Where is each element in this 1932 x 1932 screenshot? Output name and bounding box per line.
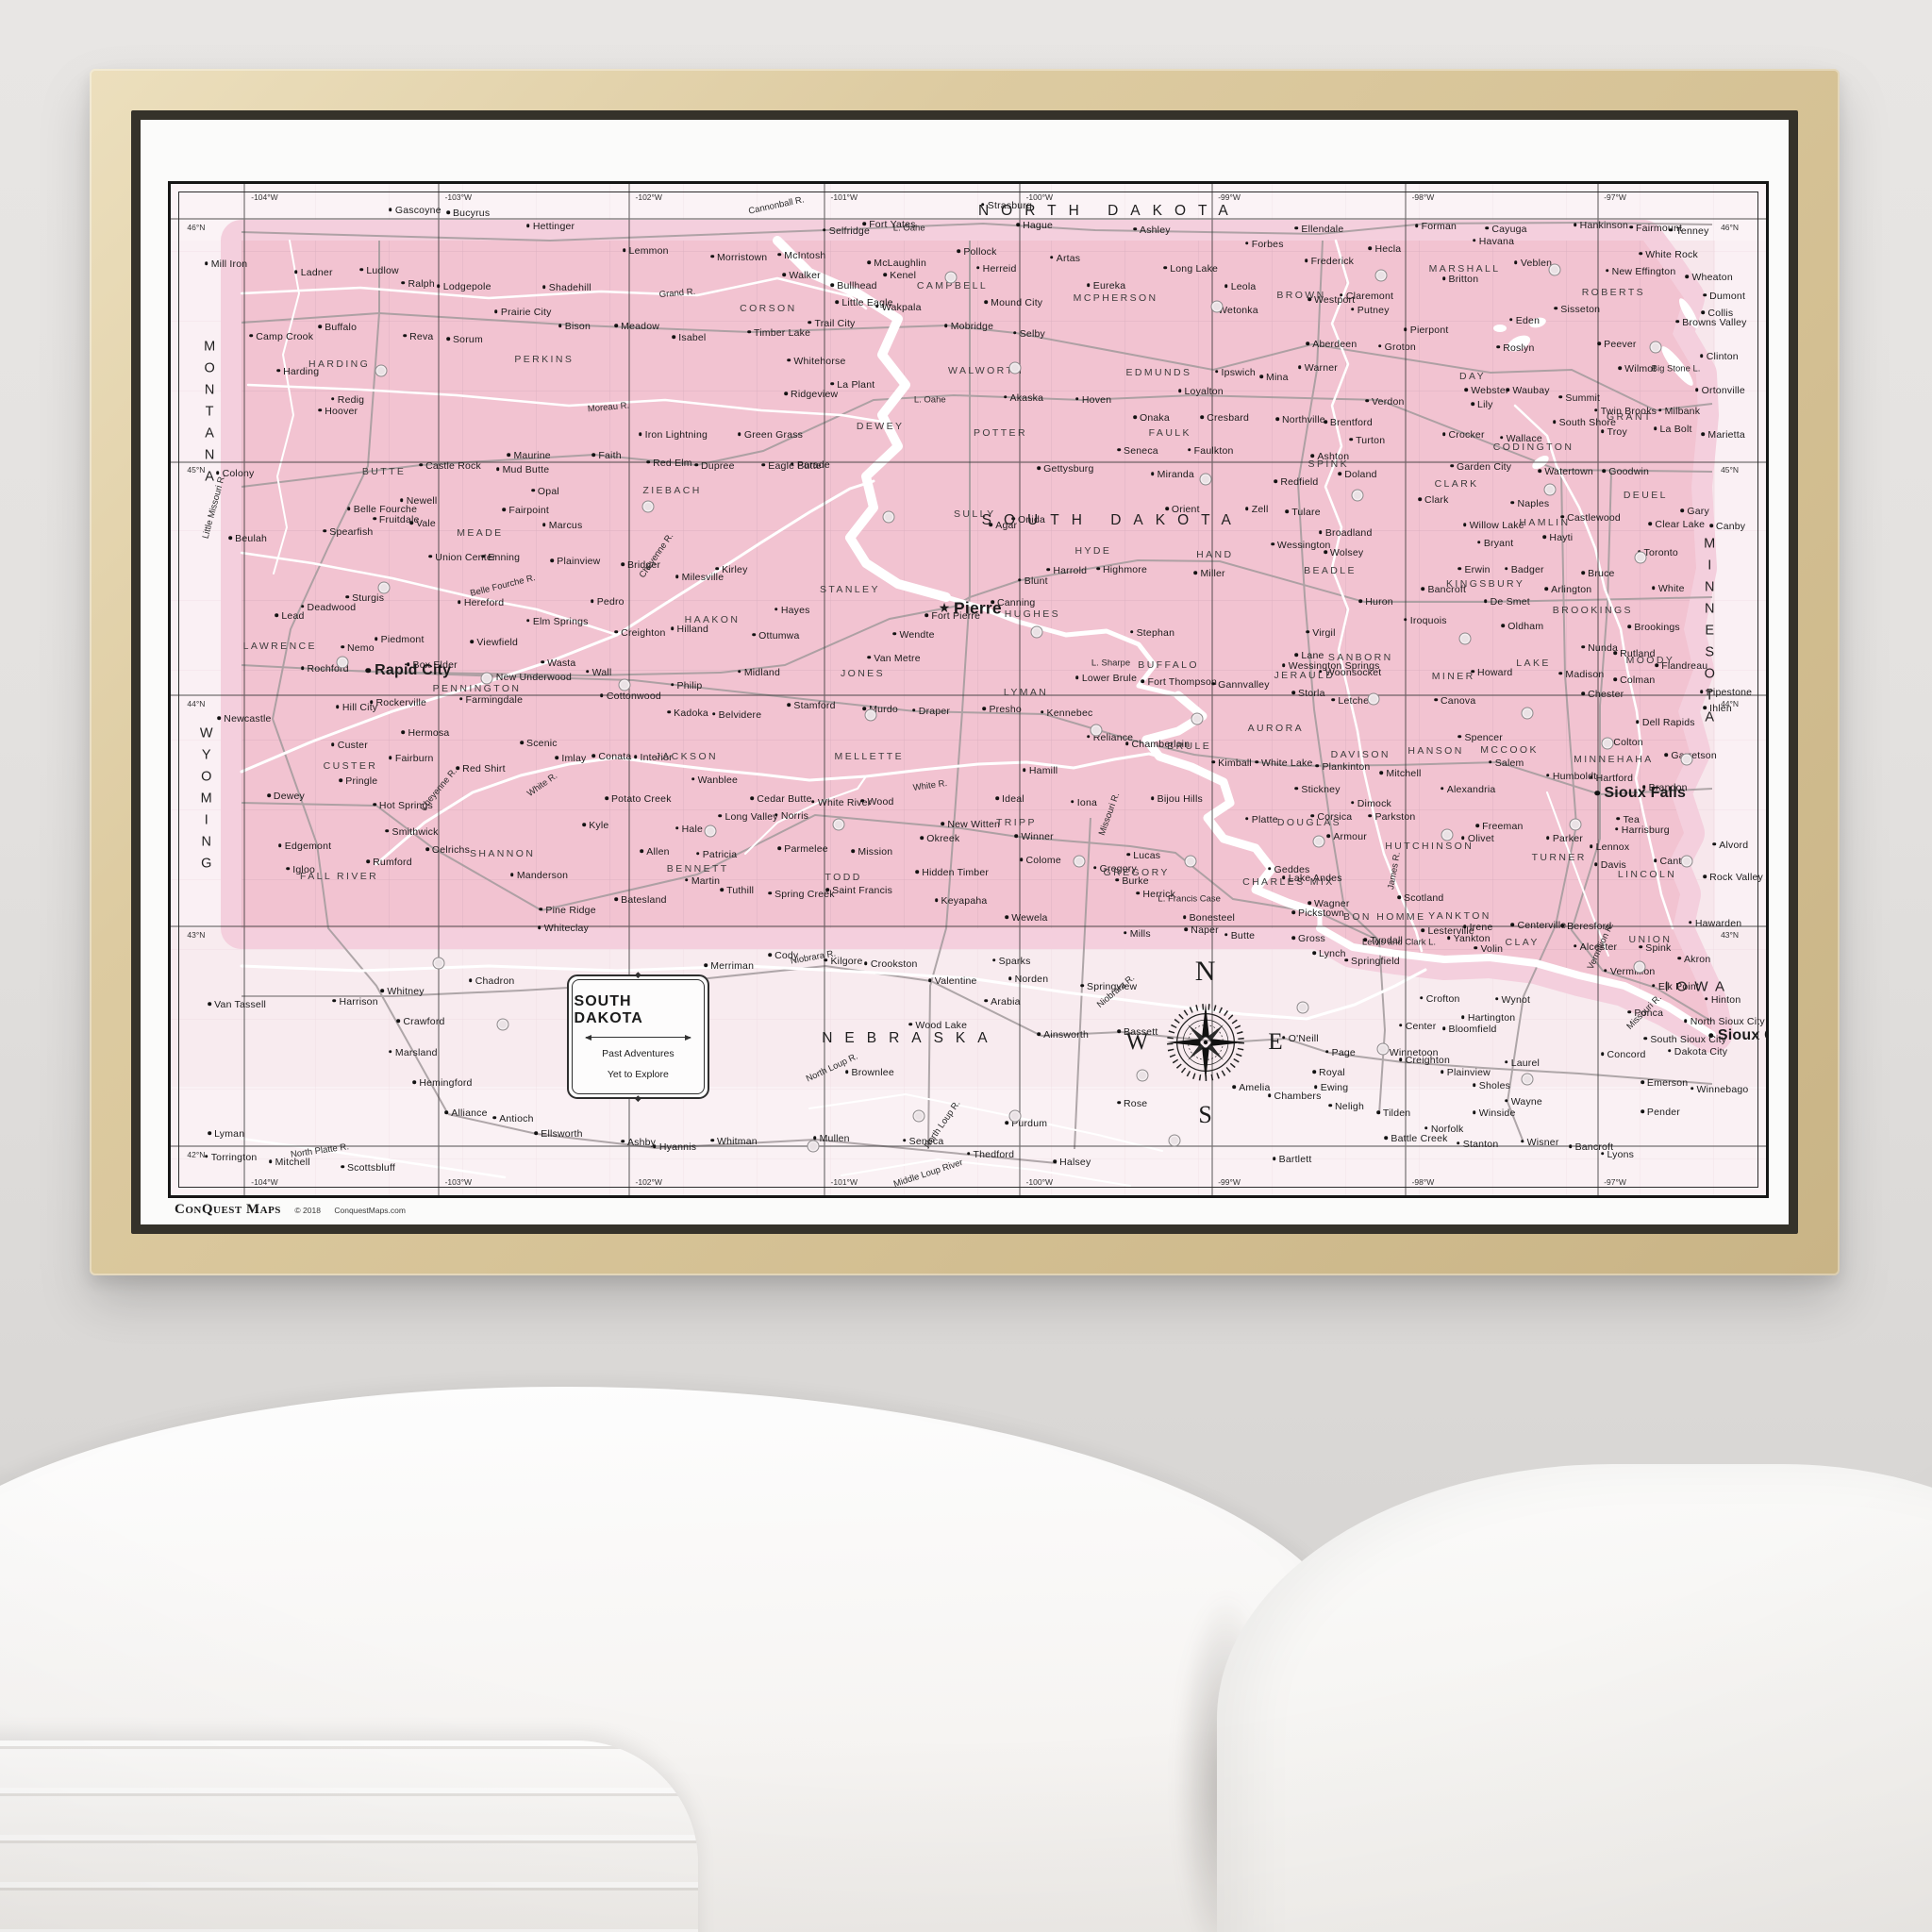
city-dot-icon [1037, 1033, 1041, 1037]
city-dot-icon [1594, 408, 1598, 412]
city-label: Ladner [296, 263, 333, 280]
city-label: Colome [1022, 851, 1061, 868]
city-dot-icon [1473, 239, 1476, 242]
road-shield-icon [496, 1018, 508, 1030]
road-shield-icon [1601, 738, 1613, 750]
city-dot-icon [1295, 654, 1299, 658]
city-dot-icon [1005, 1121, 1008, 1124]
city-label: Bucyrus [448, 204, 490, 221]
city-dot-icon [1496, 345, 1500, 349]
city-dot-icon [768, 954, 772, 958]
compass-rose: N S W E [1130, 967, 1281, 1118]
city-dot-icon [675, 575, 679, 579]
city-label: Hoover [320, 402, 358, 419]
city-dot-icon [267, 793, 271, 797]
city-dot-icon [1684, 1020, 1688, 1024]
city-dot-icon [605, 797, 608, 801]
county-label: MOODY [1626, 655, 1675, 666]
city-label: Stanton [1458, 1135, 1499, 1152]
city-label: White Rock [1641, 245, 1698, 262]
city-label: Faulkton [1190, 441, 1234, 458]
city-label: La Plant [832, 375, 874, 392]
city-label: Enning [483, 548, 520, 565]
city-label: Hettinger [528, 217, 575, 234]
city-label: Allen [641, 842, 669, 859]
city-label: Lily [1473, 395, 1493, 412]
city-dot-icon [389, 756, 392, 759]
city-dot-icon [389, 1050, 392, 1054]
city-dot-icon [1581, 571, 1585, 575]
water-label: James R. [1386, 851, 1403, 890]
city-dot-icon [788, 358, 791, 362]
state-label: NORTH DAKOTA [978, 203, 1241, 220]
city-label: Creighton [616, 624, 665, 641]
city-label: Cottonwood [602, 687, 661, 704]
city-dot-icon [492, 1116, 496, 1120]
compass-south-label: S [1198, 1101, 1211, 1129]
city-dot-icon [1713, 842, 1717, 846]
city-label: Veblen [1516, 254, 1552, 271]
city-label: Brentford [1325, 413, 1373, 430]
city-label: Lennox [1591, 838, 1630, 855]
state-label: MINNESOTA [1702, 536, 1717, 731]
water-label: L. Oahe [893, 223, 925, 233]
city-dot-icon [1604, 969, 1607, 973]
city-dot-icon [1325, 1050, 1329, 1054]
longitude-label: -99°W [1218, 1177, 1241, 1187]
city-label: Naples [1512, 494, 1549, 511]
city-dot-icon [920, 837, 924, 841]
city-dot-icon [1463, 524, 1467, 527]
city-label: Highmore [1098, 560, 1147, 577]
city-label: Whitehorse [789, 352, 845, 369]
county-label: HARDING [308, 358, 370, 370]
city-dot-icon [694, 463, 698, 467]
city-dot-icon [715, 567, 719, 571]
city-label: Smithwick [387, 823, 438, 840]
city-label: Bullhead [832, 276, 876, 293]
city-dot-icon [324, 529, 327, 533]
city-label: Wall [588, 663, 612, 680]
road-shield-icon [1073, 856, 1085, 868]
county-label: JACKSON [656, 751, 718, 762]
city-dot-icon [1338, 473, 1341, 476]
city-label: Lyman [209, 1124, 244, 1141]
city-dot-icon [1349, 438, 1353, 441]
city-label: Dewey [269, 787, 305, 804]
latitude-label: 43°N [1721, 930, 1739, 940]
city-label: Fort Thompson [1142, 673, 1217, 690]
city-label: Kirley [717, 560, 747, 577]
city-dot-icon [1654, 426, 1657, 430]
city-dot-icon [458, 600, 461, 604]
longitude-label: -98°W [1412, 1177, 1435, 1187]
city-dot-icon [1332, 698, 1336, 702]
city-dot-icon [1165, 507, 1169, 510]
city-dot-icon [639, 433, 642, 437]
city-label: White [1654, 579, 1685, 596]
city-label: Potato Creek [607, 790, 672, 807]
city-dot-icon [1328, 1104, 1332, 1108]
city-dot-icon [984, 300, 988, 304]
city-label: Onaka [1135, 408, 1170, 425]
city-dot-icon [774, 608, 778, 611]
city-dot-icon [867, 656, 871, 659]
city-dot-icon [556, 756, 559, 759]
city-dot-icon [875, 305, 879, 308]
city-dot-icon [1457, 1141, 1460, 1145]
city-dot-icon [1295, 226, 1299, 230]
city-dot-icon [1008, 976, 1012, 980]
city-label: Scottsbluff [342, 1158, 395, 1175]
city-dot-icon [228, 537, 232, 541]
city-label: Lane [1296, 646, 1324, 663]
city-dot-icon [1546, 837, 1550, 841]
county-label: HUGHES [1005, 608, 1060, 620]
city-dot-icon [1188, 448, 1191, 452]
city-dot-icon [1705, 997, 1708, 1001]
city-label: Crawford [398, 1012, 444, 1029]
city-dot-icon [1464, 388, 1468, 391]
city-label: White Lake [1257, 754, 1313, 771]
city-label: Mills [1125, 924, 1151, 941]
city-dot-icon [1096, 567, 1100, 571]
city-dot-icon [1441, 1071, 1444, 1074]
city-label: Centerville [1512, 916, 1566, 933]
city-label: Ewing [1316, 1078, 1349, 1095]
city-dot-icon [331, 742, 335, 746]
city-label: Warner [1300, 358, 1338, 375]
water-label: Grand R. [658, 286, 695, 299]
city-dot-icon [1245, 817, 1249, 821]
longitude-label: -104°W [251, 192, 277, 202]
city-dot-icon [941, 822, 945, 825]
city-dot-icon [1004, 395, 1008, 399]
city-dot-icon [541, 660, 544, 664]
city-label: Forbes [1247, 235, 1284, 252]
city-label: Akaska [1006, 389, 1044, 406]
county-label: CLAY [1506, 937, 1540, 948]
city-label: Iroquois [1406, 611, 1447, 628]
city-dot-icon [903, 1139, 907, 1142]
county-label: HYDE [1074, 545, 1111, 557]
city-dot-icon [852, 850, 856, 854]
city-dot-icon [925, 614, 929, 618]
city-dot-icon [1703, 875, 1707, 879]
city-dot-icon [719, 814, 723, 818]
city-dot-icon [1163, 266, 1167, 270]
city-label: Ortonville [1697, 381, 1745, 398]
city-dot-icon [1194, 571, 1198, 575]
city-dot-icon [1690, 1087, 1694, 1091]
city-dot-icon [738, 433, 741, 437]
city-label: Conata [593, 747, 631, 764]
city-label: Green Grass [740, 425, 803, 442]
city-dot-icon [1075, 675, 1079, 679]
water-label: Moreau R. [587, 401, 629, 415]
city-dot-icon [738, 670, 741, 674]
city-label: Virgil [1307, 624, 1335, 641]
city-label: Marsland [391, 1043, 438, 1060]
city-dot-icon [1404, 328, 1407, 332]
city-label: Cedar Butte [752, 790, 811, 807]
website-text: ConquestMaps.com [334, 1206, 406, 1215]
copyright-text: © 2018 [294, 1206, 321, 1215]
city-dot-icon [1484, 599, 1488, 603]
city-label: Sparks [994, 952, 1031, 969]
city-dot-icon [623, 249, 626, 253]
city-dot-icon [1628, 1010, 1632, 1014]
city-dot-icon [761, 463, 765, 467]
county-label: POTTER [974, 427, 1027, 439]
city-label: Clinton [1702, 347, 1739, 364]
city-dot-icon [1013, 331, 1017, 335]
city-label: Whitman [712, 1132, 758, 1149]
city-label: Mobridge [946, 317, 993, 334]
city-dot-icon [318, 408, 322, 412]
city-label: Parade [792, 456, 830, 473]
city-dot-icon [402, 730, 406, 734]
city-label: Crocker [1444, 425, 1485, 442]
city-dot-icon [1495, 997, 1499, 1001]
water-label: Cheyenne R. [418, 766, 459, 813]
county-label: UNION [1629, 934, 1673, 945]
city-label: Seneca [1119, 441, 1158, 458]
longitude-label: -100°W [1026, 192, 1053, 202]
city-label: Batesland [616, 891, 667, 908]
city-dot-icon [1369, 246, 1373, 250]
city-dot-icon [912, 708, 916, 712]
city-label: Whiteclay [540, 919, 589, 936]
road-shield-icon [1008, 362, 1021, 375]
city-dot-icon [641, 850, 644, 854]
city-label: Selby [1015, 325, 1045, 341]
city-dot-icon [1644, 1037, 1648, 1041]
city-dot-icon [783, 273, 787, 276]
city-label: Rumford [368, 853, 412, 870]
city-label: Huron [1360, 592, 1393, 609]
city-dot-icon [444, 1111, 448, 1115]
legend-line-1: Past Adventures [602, 1048, 674, 1059]
city-dot-icon [1702, 433, 1706, 437]
longitude-label: -98°W [1412, 192, 1435, 202]
city-label: Kimball [1213, 754, 1252, 771]
city-dot-icon [747, 330, 751, 334]
city-label: Presho [984, 700, 1021, 717]
city-label: Lower Brule [1077, 669, 1137, 686]
road-shield-icon [480, 673, 492, 685]
city-label: Naper [1186, 921, 1219, 938]
city-label: Redfield [1275, 473, 1318, 490]
city-dot-icon [1117, 448, 1121, 452]
city-label: Rockerville [372, 693, 427, 710]
city-dot-icon [1178, 389, 1182, 392]
city-label: Valentine [930, 972, 977, 989]
city-label: Center [1401, 1017, 1437, 1034]
city-dot-icon [540, 908, 543, 911]
city-dot-icon [1654, 858, 1657, 862]
city-dot-icon [935, 898, 939, 902]
city-label: Canby [1711, 517, 1745, 534]
city-dot-icon [1005, 916, 1008, 920]
road-shield-icon [882, 510, 894, 523]
water-label: Lewis and Clark L. [1362, 938, 1436, 948]
county-label: MINNEHAHA [1574, 754, 1654, 765]
city-label: Edgemont [280, 837, 331, 854]
road-shield-icon [833, 819, 845, 831]
city-dot-icon [777, 253, 781, 257]
county-label: GRANT [1607, 411, 1653, 423]
state-label: IOWA [1665, 978, 1732, 994]
city-label: Storla [1293, 684, 1325, 701]
city-dot-icon [634, 755, 638, 758]
city-label: De Smet [1486, 592, 1530, 609]
city-label: Patricia [698, 845, 738, 862]
city-dot-icon [526, 619, 530, 623]
city-label: Manderson [512, 866, 568, 883]
city-dot-icon [1376, 1111, 1380, 1115]
road-shield-icon [1210, 300, 1223, 312]
city-label: Opal [533, 482, 559, 499]
road-shield-icon [336, 656, 348, 668]
city-dot-icon [366, 859, 370, 863]
city-label: Tuthill [722, 881, 754, 898]
city-label: Willow Lake [1465, 516, 1524, 533]
city-label: Brandon [1644, 778, 1688, 795]
city-label: Iron Lightning [641, 425, 708, 442]
city-label: Kyle [584, 816, 608, 833]
road-shield-icon [1635, 551, 1647, 563]
city-label: Eureka [1089, 276, 1125, 293]
city-dot-icon [696, 852, 700, 856]
legend-title: SOUTH DAKOTA [575, 993, 703, 1027]
city-dot-icon [1649, 522, 1653, 525]
city-dot-icon [526, 225, 530, 228]
road-shield-icon [1377, 1042, 1390, 1055]
city-label: Blunt [1020, 572, 1048, 589]
city-dot-icon [510, 873, 514, 876]
city-dot-icon [1259, 375, 1263, 378]
city-dot-icon [1080, 984, 1084, 988]
city-dot-icon [1125, 741, 1129, 745]
city-dot-icon [205, 262, 208, 266]
city-label: Lucas [1128, 846, 1160, 863]
city-label: Frederick [1307, 252, 1355, 269]
county-label: EDMUNDS [1125, 367, 1191, 378]
city-dot-icon [1312, 1071, 1316, 1074]
city-label: Roslyn [1498, 339, 1534, 356]
city-dot-icon [1151, 797, 1155, 801]
county-label: CORSON [740, 303, 797, 314]
city-dot-icon [1486, 226, 1490, 230]
city-dot-icon [1447, 936, 1451, 940]
city-label: Hayti [1544, 528, 1573, 545]
city-dot-icon [1442, 277, 1446, 281]
city-label: Norden [1010, 970, 1049, 987]
city-dot-icon [1441, 787, 1444, 791]
city-label: Belle Fourche [349, 500, 417, 517]
capital-star-icon: ★ [939, 600, 951, 616]
city-dot-icon [1458, 567, 1462, 571]
city-label: Hartford [1591, 769, 1634, 786]
city-label: Forman [1417, 217, 1457, 234]
city-label: Madison [1560, 665, 1604, 682]
county-label: BROOKINGS [1553, 605, 1633, 616]
city-dot-icon [1415, 225, 1419, 228]
city-dot-icon [520, 741, 524, 744]
city-dot-icon [1675, 320, 1679, 324]
city-dot-icon [1224, 284, 1228, 288]
city-label: Tulare [1287, 503, 1321, 520]
city-label: Akron [1679, 950, 1710, 967]
city-dot-icon [1461, 837, 1465, 841]
city-label: Battle Creek [1386, 1129, 1447, 1146]
city-dot-icon [995, 797, 999, 801]
city-label: Hermosa [403, 724, 449, 741]
city-label: Castlewood [1562, 508, 1621, 525]
city-label: Leola [1226, 277, 1257, 294]
city-label: Tilden [1378, 1104, 1410, 1121]
city-dot-icon [586, 670, 590, 674]
city-dot-icon [1606, 269, 1609, 273]
city-dot-icon [1594, 863, 1598, 867]
county-label: HUTCHINSON [1385, 841, 1474, 852]
city-dot-icon [1116, 878, 1120, 882]
county-label: LAWRENCE [243, 641, 317, 652]
city-dot-icon [1703, 293, 1707, 297]
city-label: Spearfish [325, 523, 373, 540]
city-dot-icon [712, 712, 716, 716]
city-dot-icon [808, 321, 812, 325]
city-dot-icon [1016, 224, 1020, 227]
city-label: Wood [862, 792, 893, 809]
city-dot-icon [1546, 774, 1550, 777]
road-shield-icon [1185, 856, 1197, 868]
city-label: Red Elm [648, 454, 692, 471]
city-label: Lynch [1314, 944, 1346, 961]
city-label: Red Shirt [458, 759, 506, 776]
attribution: ConQuest Maps © 2018 ConquestMaps.com [175, 1201, 406, 1218]
county-label: ZIEBACH [642, 485, 701, 496]
city-label: Gascoyne [391, 201, 441, 218]
county-label: DEUEL [1624, 490, 1668, 501]
city-label: Wasta [542, 654, 575, 671]
city-dot-icon [278, 843, 282, 847]
city-dot-icon [419, 463, 423, 467]
city-label: Gross [1293, 929, 1325, 946]
city-dot-icon [1351, 308, 1355, 311]
road-shield-icon [1681, 754, 1693, 766]
city-dot-icon [984, 999, 988, 1003]
city-dot-icon [768, 891, 772, 895]
city-label: Zell [1247, 500, 1269, 517]
city-label: Bijou Hills [1153, 790, 1203, 807]
longitude-label: -97°W [1604, 192, 1626, 202]
city-label: Mill Iron [207, 255, 248, 272]
latitude-label: 44°N [1721, 699, 1739, 708]
water-label: Missouri R. [1097, 791, 1123, 836]
city-dot-icon [373, 517, 376, 521]
city-dot-icon [614, 324, 618, 327]
city-label: Mina [1261, 368, 1289, 385]
city-dot-icon [459, 697, 463, 701]
water-label: Middle Loup River [892, 1158, 964, 1190]
city-dot-icon [205, 1155, 208, 1158]
city-dot-icon [1316, 764, 1320, 768]
city-dot-icon [751, 797, 755, 801]
city-dot-icon [646, 460, 650, 464]
latitude-label: 46°N [187, 223, 205, 232]
